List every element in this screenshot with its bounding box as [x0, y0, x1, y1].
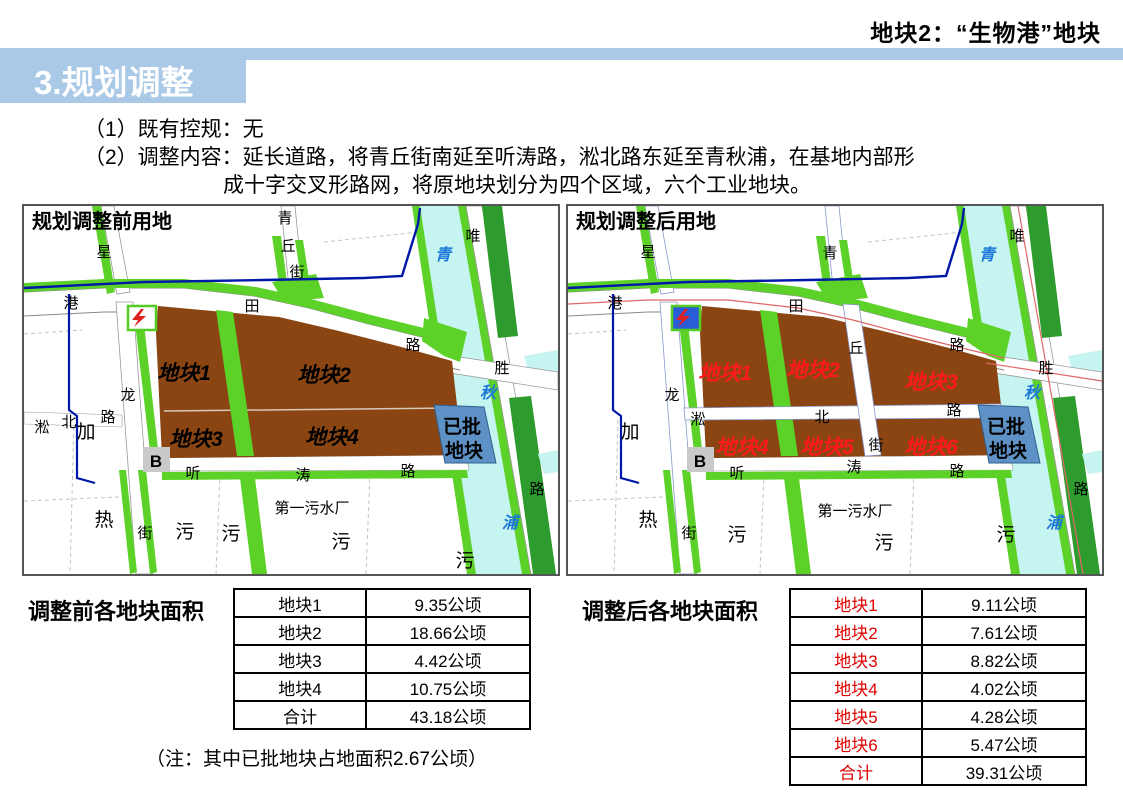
plot-name: 地块3 [790, 645, 922, 673]
plot-area: 9.11公顷 [922, 589, 1086, 617]
plot-name: 地块1 [790, 589, 922, 617]
map-label-wu-1: 污 [727, 524, 746, 546]
section-title-bar: 3.规划调整 [0, 48, 246, 103]
map-label-qiu-st: 丘 [280, 238, 295, 255]
map-label-jie-south: 街 [681, 525, 696, 542]
river-label-qing: 青 [435, 246, 453, 264]
plot-label-2: 地块2 [786, 358, 840, 382]
plot-label-4: 地块4 [715, 435, 769, 459]
map-label-re: 热 [638, 509, 657, 531]
map-label-lu-east: 路 [529, 481, 544, 498]
map-label-jie-st: 街 [868, 437, 883, 454]
power-box [128, 306, 156, 330]
plot-name: 地块4 [234, 673, 366, 701]
area-table-before: 地块19.35公顷 地块218.66公顷 地块34.42公顷 地块410.75公… [233, 588, 531, 730]
plot-area: 4.42公顷 [366, 645, 530, 673]
plot-area: 43.18公顷 [366, 701, 530, 729]
land-use-map-before: B 星 青 丘 街 唯 港 田 路 青 秋 浦 胜 路 龙 淞 北 路 加 [24, 206, 558, 574]
table-row: 地块54.28公顷 [790, 701, 1086, 729]
map-label-long: 龙 [664, 387, 679, 404]
map-label-wu-3: 污 [996, 524, 1015, 546]
plot-area: 9.35公顷 [366, 589, 530, 617]
table-caption-before: 调整前各地块面积 [28, 594, 204, 626]
plot-label-4: 地块4 [305, 425, 359, 449]
table-row: 地块34.42公顷 [234, 645, 530, 673]
map-label-xing: 星 [96, 244, 111, 261]
map-label-gang: 港 [63, 295, 78, 312]
map-label-ting: 听 [729, 465, 744, 482]
b-box: B [687, 447, 714, 472]
intro-line-2: （2）调整内容：延长道路，将青丘街南延至听涛路，淞北路东延至青秋浦，在基地内部形 [84, 144, 915, 172]
map-label-plant: 第一污水厂 [274, 499, 349, 517]
plot-name: 地块4 [790, 673, 922, 701]
plot-label-5: 地块5 [800, 435, 854, 459]
map-label-lu-main: 路 [405, 337, 420, 354]
plot-label-1: 地块1 [698, 361, 752, 385]
plot-area: 7.61公顷 [922, 617, 1086, 645]
map-label-wu-1: 污 [175, 521, 194, 543]
power-box [672, 306, 700, 330]
table-caption-after: 调整后各地块面积 [582, 594, 758, 626]
map-label-wei: 唯 [1009, 228, 1024, 245]
map-label-tao: 涛 [295, 467, 310, 484]
plot-label-3: 地块3 [169, 427, 223, 451]
map-label-qing-st: 青 [277, 210, 292, 227]
approved-label-2: 地块 [445, 439, 484, 462]
land-use-map-after: B 星 青 丘 街 唯 港 田 路 青 秋 浦 胜 路 龙 淞 北 路 加 [568, 206, 1102, 574]
approved-label-1: 已批 [987, 416, 1025, 438]
map-label-jie-st: 街 [289, 264, 304, 281]
map-label-jia: 加 [620, 421, 639, 443]
river-label-qiu: 秋 [1024, 384, 1042, 402]
map-before: B 星 青 丘 街 唯 港 田 路 青 秋 浦 胜 路 龙 淞 北 路 加 [22, 204, 560, 576]
map-label-bei: 北 [814, 409, 829, 426]
section-title: 3.规划调整 [34, 56, 194, 104]
map-label-jie-south: 街 [137, 525, 152, 542]
intro-text: （1）既有控规：无 （2）调整内容：延长道路，将青丘街南延至听涛路，淞北路东延至… [84, 116, 915, 200]
map-label-wu-2: 污 [221, 523, 240, 545]
map-label-b: B [694, 452, 706, 471]
table-row: 地块27.61公顷 [790, 617, 1086, 645]
plot-label-1: 地块1 [157, 361, 211, 385]
table-row: 合计43.18公顷 [234, 701, 530, 729]
area-table-after: 地块19.11公顷 地块27.61公顷 地块38.82公顷 地块44.02公顷 … [789, 588, 1087, 786]
map-label-bei: 北 [61, 414, 76, 431]
map-title-after: 规划调整后用地 [576, 209, 716, 233]
map-label-song: 淞 [34, 419, 49, 436]
slide-tag: 地块2：“生物港”地块 [870, 14, 1101, 48]
map-label-song: 淞 [690, 411, 705, 428]
plot-label-6: 地块6 [904, 435, 958, 459]
map-label-lu-main: 路 [949, 337, 964, 354]
plot-area: 5.47公顷 [922, 729, 1086, 757]
map-label-lu-songbei: 路 [946, 402, 961, 419]
map-label-plant: 第一污水厂 [817, 502, 892, 520]
map-label-tian: 田 [244, 298, 259, 315]
map-label-tao: 涛 [846, 459, 861, 476]
plot-name: 地块2 [790, 617, 922, 645]
plot-area: 39.31公顷 [922, 757, 1086, 785]
table-row: 地块38.82公顷 [790, 645, 1086, 673]
map-label-wu-4: 污 [455, 550, 474, 572]
map-label-lu-east: 路 [1073, 481, 1088, 498]
map-label-lu-tingtao: 路 [949, 463, 964, 480]
plot-name: 地块6 [790, 729, 922, 757]
plot-label-3: 地块3 [904, 370, 958, 394]
map-label-wu-3: 污 [331, 531, 350, 553]
map-label-lu-songbei: 路 [100, 409, 115, 426]
table-row: 地块19.35公顷 [234, 589, 530, 617]
map-label-wei: 唯 [465, 228, 480, 245]
map-label-lu-tingtao: 路 [400, 463, 415, 480]
river-label-qiu: 秋 [480, 384, 498, 402]
map-label-sheng: 胜 [1038, 360, 1053, 377]
river-label-qing: 青 [979, 246, 997, 264]
map-label-sheng: 胜 [494, 360, 509, 377]
map-label-tian: 田 [788, 298, 803, 315]
map-label-b: B [150, 452, 162, 471]
approved-label-1: 已批 [443, 416, 481, 438]
plot-name: 地块2 [234, 617, 366, 645]
table-row: 地块19.11公顷 [790, 589, 1086, 617]
table-row: 地块410.75公顷 [234, 673, 530, 701]
footnote: （注：其中已批地块占地面积2.67公顷） [146, 744, 487, 771]
table-row: 地块218.66公顷 [234, 617, 530, 645]
intro-line-1: （1）既有控规：无 [84, 116, 915, 144]
map-label-ting: 听 [185, 465, 200, 482]
map-label-re: 热 [94, 509, 113, 531]
plot-name: 地块1 [234, 589, 366, 617]
plot-name: 地块5 [790, 701, 922, 729]
slide: 地块2：“生物港”地块 3.规划调整 （1）既有控规：无 （2）调整内容：延长道… [0, 0, 1123, 794]
map-label-jia: 加 [76, 421, 95, 443]
plot-label-2: 地块2 [297, 363, 351, 387]
map-after: B 星 青 丘 街 唯 港 田 路 青 秋 浦 胜 路 龙 淞 北 路 加 [566, 204, 1104, 576]
plot-area: 18.66公顷 [366, 617, 530, 645]
map-label-qing-st: 青 [822, 245, 837, 262]
plot-area: 10.75公顷 [366, 673, 530, 701]
map-label-xing: 星 [640, 244, 655, 261]
map-title-before: 规划调整前用地 [32, 209, 172, 233]
table-row: 合计39.31公顷 [790, 757, 1086, 785]
plot-area: 4.02公顷 [922, 673, 1086, 701]
map-label-qiu-st: 丘 [848, 340, 863, 357]
plot-name: 地块3 [234, 645, 366, 673]
plot-area: 4.28公顷 [922, 701, 1086, 729]
table-row: 地块65.47公顷 [790, 729, 1086, 757]
plot-area: 8.82公顷 [922, 645, 1086, 673]
intro-line-3: 成十字交叉形路网，将原地块划分为四个区域，六个工业地块。 [223, 172, 915, 200]
approved-label-2: 地块 [989, 439, 1028, 462]
plot-name: 合计 [790, 757, 922, 785]
plot-name: 合计 [234, 701, 366, 729]
table-row: 地块44.02公顷 [790, 673, 1086, 701]
map-label-long: 龙 [120, 387, 135, 404]
b-box: B [143, 447, 170, 472]
map-label-wu-2: 污 [874, 532, 893, 554]
map-label-gang: 港 [607, 295, 622, 312]
